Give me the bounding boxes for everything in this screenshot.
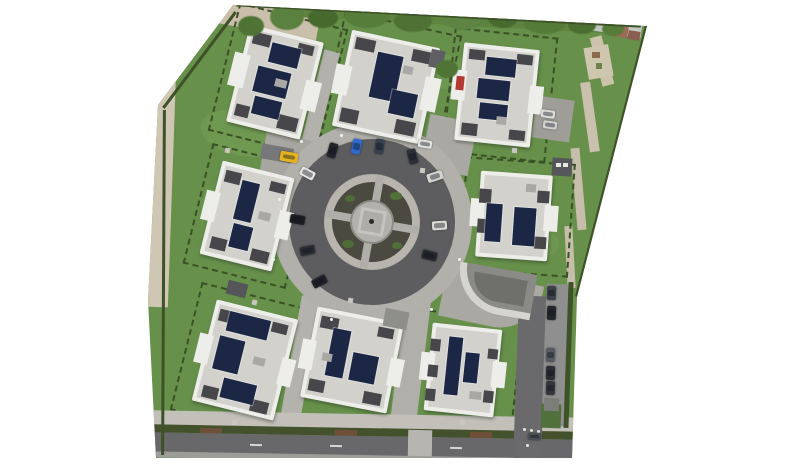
tree (238, 16, 264, 36)
car (546, 381, 555, 395)
solar-array (477, 78, 511, 101)
shed (551, 157, 572, 176)
roof-well (425, 388, 436, 401)
solar-array (388, 89, 418, 118)
residential-complex-site (0, 0, 800, 469)
bollard (272, 258, 275, 261)
roof-well (469, 49, 486, 61)
tree (488, 8, 518, 28)
car (547, 286, 556, 300)
paving-stone (460, 420, 465, 425)
solar-array (484, 203, 503, 242)
roof-well (479, 189, 492, 204)
roof-well (537, 191, 550, 204)
bollard (458, 258, 461, 261)
tree (394, 10, 432, 32)
car (528, 433, 541, 440)
car (547, 306, 556, 320)
building-mid-right (475, 171, 553, 262)
fountain-dot (369, 219, 374, 224)
tree (344, 2, 390, 28)
rooftop-unit (321, 352, 332, 362)
bollard (278, 198, 281, 201)
rooftop-unit (469, 391, 482, 400)
bollard (340, 134, 343, 137)
building-top-right (454, 42, 540, 147)
paving-stone (348, 298, 354, 304)
lane-dash (330, 445, 342, 447)
neighbor-roof (627, 30, 640, 41)
paving-stone (420, 168, 425, 173)
playground-item (592, 52, 600, 58)
car (546, 348, 555, 362)
bollard (412, 138, 415, 141)
aerial-orthophoto (0, 0, 800, 469)
red-balcony (455, 76, 464, 91)
roof-well (508, 129, 525, 141)
lane-dash (250, 444, 262, 446)
shrub (342, 240, 354, 248)
roof-well (534, 236, 547, 249)
roof-well (516, 54, 533, 66)
crossing-dot (530, 429, 533, 432)
lane-dash (450, 447, 462, 449)
solar-array (512, 207, 537, 246)
playground-patch (583, 44, 613, 80)
crossing-dot (526, 444, 529, 447)
solar-array (348, 352, 379, 384)
roof-well (430, 338, 441, 351)
solar-array (485, 57, 517, 78)
shed-box (563, 163, 568, 167)
paving-stone (232, 420, 237, 425)
utility-box (544, 398, 559, 412)
shrub (345, 195, 355, 202)
crossing-dot (523, 428, 526, 431)
tree (436, 60, 458, 78)
bollard (430, 308, 433, 311)
shrub (390, 192, 402, 200)
rooftop-unit (526, 184, 537, 193)
tree (630, 14, 646, 26)
street-crossing (408, 430, 432, 458)
shrub (392, 242, 402, 249)
building-bottom-right (424, 323, 503, 418)
rooftop-unit (496, 116, 507, 125)
shed-box (556, 163, 561, 167)
car (546, 366, 555, 380)
roof-well (487, 349, 498, 360)
roof-well (427, 364, 438, 377)
car (432, 220, 448, 230)
bollard (300, 140, 303, 143)
paving-stone (512, 148, 517, 153)
wing (543, 205, 559, 232)
bollard (330, 318, 333, 321)
roof-well (461, 122, 478, 136)
playground-item (596, 63, 602, 69)
wing (490, 361, 507, 388)
roof-well (483, 390, 494, 403)
